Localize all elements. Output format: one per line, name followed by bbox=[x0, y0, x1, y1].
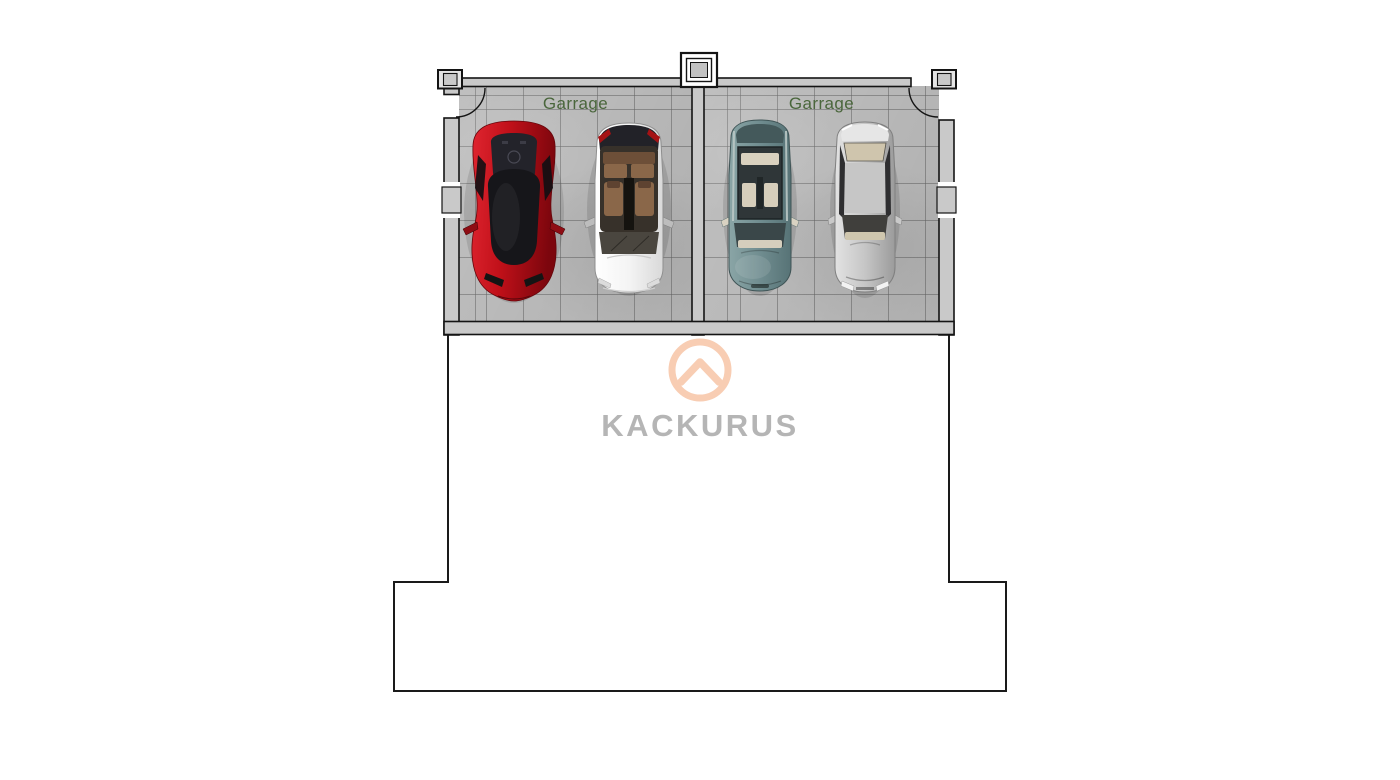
silver-sedan-car bbox=[828, 119, 902, 299]
wall-left bbox=[444, 118, 459, 335]
corner-pillar-left bbox=[438, 70, 462, 89]
brand-name: KACKURUS bbox=[601, 408, 798, 444]
wall-right bbox=[939, 120, 954, 335]
floor-plan-canvas: Garrage Garrage bbox=[0, 0, 1400, 780]
garage-left-label: Garrage bbox=[459, 94, 692, 114]
white-compact-car bbox=[583, 120, 675, 298]
garage-right-label: Garrage bbox=[704, 94, 939, 114]
chimney bbox=[681, 53, 717, 87]
teal-sedan-car bbox=[721, 117, 799, 297]
corner-pillar-right bbox=[932, 70, 956, 89]
brand-watermark: KACKURUS bbox=[540, 338, 860, 444]
wall-divider bbox=[692, 85, 704, 335]
red-sports-car bbox=[462, 117, 566, 305]
wall-top-left bbox=[455, 78, 681, 87]
brand-roof-icon bbox=[668, 338, 732, 402]
wall-top-right bbox=[717, 78, 911, 87]
wall-bottom bbox=[444, 322, 954, 335]
